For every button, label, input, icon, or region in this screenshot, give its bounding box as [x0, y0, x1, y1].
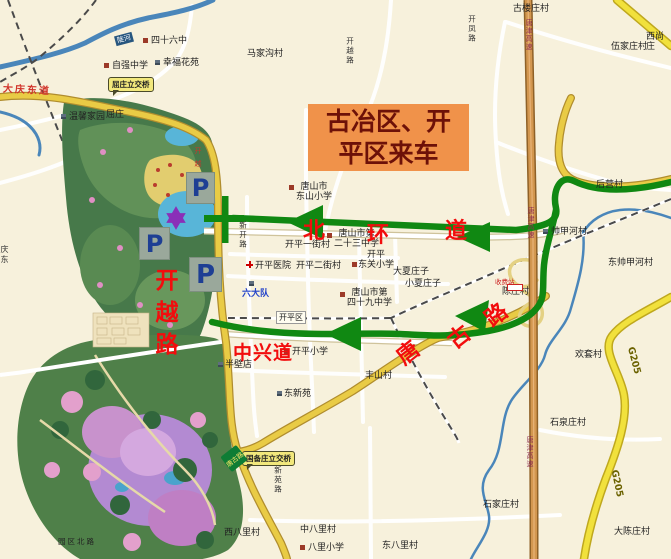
village-label: 西尚庄 [646, 33, 671, 52]
school-label: 四十六中 [151, 37, 187, 47]
village-label: 古楼庄村 [513, 5, 549, 15]
house-icon [218, 362, 223, 367]
house-icon [155, 60, 160, 65]
school-icon [327, 233, 332, 238]
village-label: 幸福花苑 [163, 59, 199, 69]
road-name-daqingdongdao: 大庆东道 [3, 80, 52, 97]
toll-gate-icon [507, 284, 523, 291]
road-name-kaiyuelu: 开越路 [152, 268, 175, 364]
village-label: 马家沟村 [247, 50, 283, 60]
district-label: 六大队 [242, 290, 269, 300]
school-icon [340, 292, 345, 297]
district-box-label: 开平区 [276, 311, 306, 324]
banner-line1: 古冶区、开 [308, 106, 469, 138]
school-icon [289, 185, 294, 190]
road-name-huan: 环 [367, 225, 389, 247]
road-label: 开凤路 [468, 15, 476, 44]
hospital-label: 开平医院 [255, 262, 291, 272]
map-canvas [0, 0, 671, 559]
hospital-cross-icon [246, 261, 253, 268]
road-label: 新苑路 [274, 466, 282, 495]
school-label: 唐山市 东山小学 [296, 183, 332, 202]
school-label: 唐山市第 四十九中学 [347, 289, 392, 308]
village-label: 丰山村 [365, 372, 392, 382]
parking-marker: P [139, 227, 170, 260]
house-icon [249, 281, 254, 286]
village-label: 东八里村 [382, 542, 418, 552]
school-icon [352, 262, 357, 267]
direction-banner: 古冶区、开 平区来车 [308, 104, 469, 171]
parking-marker: P [189, 257, 222, 292]
road-label: 开越路 [346, 37, 354, 66]
school-label: 开平小学 [292, 348, 328, 358]
school-label: 自强中学 [112, 62, 148, 72]
village-label: 西八里村 [224, 529, 260, 539]
school-label: 开平 东关小学 [358, 251, 394, 270]
school-icon [104, 63, 109, 68]
house-icon [543, 229, 548, 234]
village-label: 伍家庄村 [611, 43, 647, 53]
interchange-callout: 屈庄立交桥 [108, 77, 154, 92]
village-label: 大夏庄子 [393, 268, 429, 278]
school-label: 八里小学 [308, 544, 344, 554]
school-icon [300, 545, 305, 550]
road-name-zhongxingdao: 中兴道 [233, 344, 293, 363]
road-label: 新开路 [239, 221, 247, 250]
village-label: 中八里村 [300, 526, 336, 536]
closure-bar-horizontal [204, 215, 244, 222]
road-direction-map: 四十六中 幸福花苑 自强中学 马家沟村 温馨家园 屈庄 古楼庄村 伍家庄村 西尚… [0, 0, 671, 559]
village-label: 小夏庄子 [405, 280, 441, 290]
village-label: 温馨家园 [69, 113, 105, 123]
village-label: 屈庄 [106, 111, 124, 121]
village-label: 石家庄村 [483, 501, 519, 511]
interchange-callout: 国备庄立交桥 [242, 451, 295, 466]
school-icon [143, 38, 148, 43]
banner-line2: 平区来车 [308, 138, 469, 170]
road-label: 园区北路 [58, 538, 96, 546]
village-label: 后营村 [596, 181, 623, 191]
village-label: 石泉庄村 [550, 419, 586, 429]
house-icon [277, 391, 282, 396]
village-label: 大陈庄村 [614, 528, 650, 538]
building-cluster [93, 313, 149, 347]
village-label: 帅甲河村 [551, 228, 587, 238]
road-name-bei: 北 [303, 221, 325, 243]
road-name-dao: 道 [445, 221, 467, 243]
road-label: 庆东 [0, 245, 8, 265]
expressway-label: 唐津高速 [525, 19, 532, 51]
village-label: 开平二街村 [296, 262, 341, 272]
village-label: 东新苑 [284, 390, 311, 400]
parking-marker: P [186, 172, 215, 204]
expressway-label: 唐津高速 [526, 436, 533, 468]
village-label: 东帅甲河村 [608, 259, 653, 269]
expressway-label: 唐津高速 [527, 207, 534, 239]
village-label: 欢套村 [575, 351, 602, 361]
house-icon [61, 114, 66, 119]
